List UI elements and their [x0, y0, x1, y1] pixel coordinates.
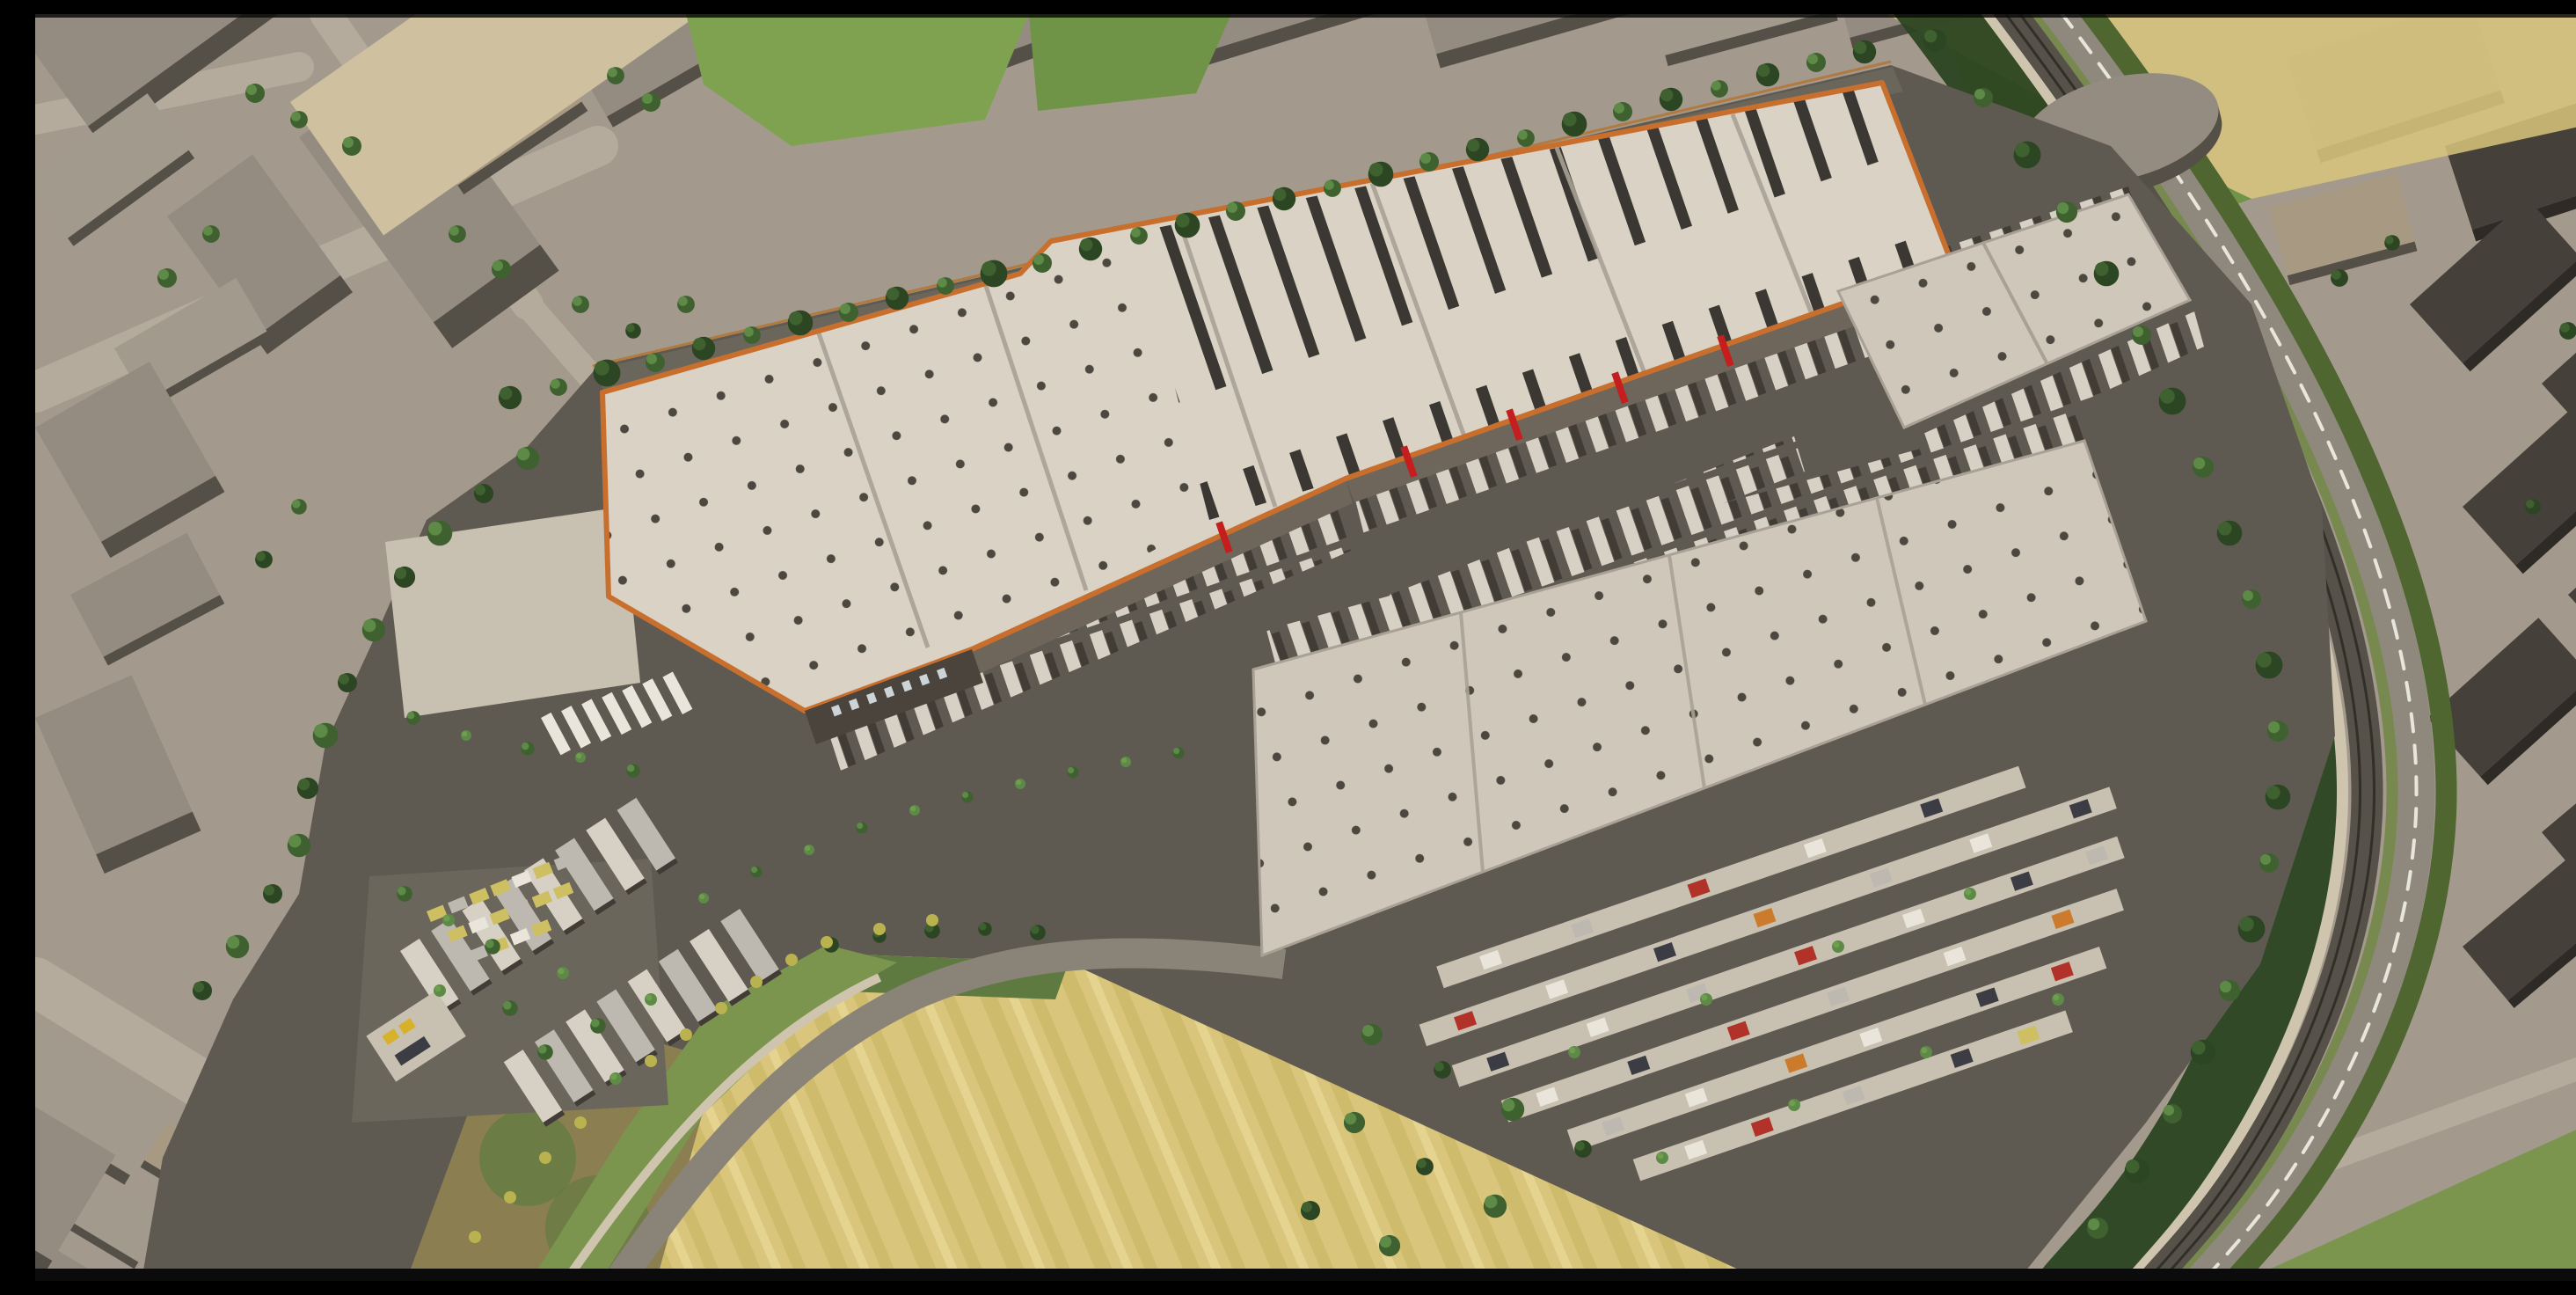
bush — [574, 1116, 587, 1129]
tree — [590, 1018, 606, 1034]
tree — [2259, 853, 2279, 873]
tree — [290, 111, 308, 128]
tree — [342, 136, 361, 156]
tree — [2266, 785, 2291, 810]
tree — [1501, 1098, 1524, 1121]
tree — [1361, 1024, 1383, 1045]
tree — [2052, 993, 2064, 1006]
tree — [575, 752, 586, 763]
tree — [1434, 1061, 1451, 1079]
tree — [626, 764, 639, 777]
tree — [485, 939, 500, 955]
bush — [750, 976, 763, 988]
tree — [1832, 940, 1844, 953]
tree — [397, 886, 412, 902]
tree — [2014, 142, 2041, 169]
tree — [572, 296, 589, 313]
bush — [504, 1191, 516, 1204]
tree — [537, 1044, 553, 1060]
bush — [785, 954, 798, 966]
tree — [492, 260, 511, 279]
tree — [502, 1000, 518, 1016]
tree — [263, 884, 282, 904]
tree — [1416, 1158, 1434, 1175]
tree — [1015, 779, 1025, 789]
tree — [961, 791, 973, 802]
tree — [1756, 63, 1779, 86]
tree — [394, 567, 415, 588]
bush — [645, 1055, 657, 1067]
tree — [291, 499, 307, 515]
tree — [202, 225, 220, 243]
tree — [1484, 1195, 1507, 1218]
tree — [750, 866, 762, 877]
tree — [1613, 102, 1632, 121]
tree — [1964, 888, 1976, 900]
tree — [1172, 747, 1184, 758]
tree — [362, 618, 385, 641]
tree — [1130, 227, 1148, 245]
tree — [1574, 1140, 1592, 1158]
tree — [788, 311, 814, 336]
bush — [539, 1152, 551, 1164]
tree — [743, 326, 761, 344]
tree — [1067, 766, 1078, 778]
aerial-3d-rendering — [35, 14, 2576, 1281]
tree — [1226, 201, 1245, 221]
tree — [434, 984, 446, 997]
tree — [1711, 80, 1728, 98]
tree — [886, 287, 909, 310]
tree — [1656, 1152, 1668, 1164]
tree — [157, 268, 177, 288]
bush — [821, 936, 833, 948]
bush — [680, 1028, 692, 1041]
tree — [193, 981, 212, 1000]
tree — [1033, 253, 1052, 273]
tree — [1562, 112, 1587, 137]
tree — [2159, 388, 2186, 415]
tree — [297, 778, 318, 799]
tree — [1923, 29, 1946, 52]
tree — [1030, 925, 1046, 940]
tree — [692, 337, 715, 360]
tree — [2087, 1218, 2108, 1239]
tree — [557, 967, 569, 979]
tree — [1079, 238, 1102, 260]
bush — [873, 923, 886, 935]
tree — [461, 730, 471, 741]
tree — [2163, 1104, 2182, 1123]
tree — [2056, 201, 2077, 223]
tree — [609, 1072, 622, 1085]
bush — [926, 914, 938, 926]
tree — [1419, 152, 1439, 172]
tree — [338, 673, 357, 692]
tree — [1324, 179, 1341, 197]
tree — [442, 914, 455, 926]
tree — [2219, 980, 2240, 1001]
tree — [1301, 1201, 1320, 1220]
tree — [2191, 1040, 2216, 1065]
tree — [839, 303, 858, 322]
tree — [474, 484, 493, 503]
tree — [1344, 1112, 1365, 1133]
tree — [2256, 652, 2283, 679]
tree — [646, 353, 665, 372]
tree — [1806, 53, 1826, 72]
tree — [1368, 162, 1394, 187]
tree — [2217, 521, 2243, 546]
tree — [1379, 1235, 1400, 1256]
tree — [607, 67, 624, 84]
tree — [1974, 88, 1993, 107]
tree — [1660, 88, 1682, 111]
tree — [856, 822, 867, 833]
tree — [1700, 993, 1712, 1006]
tree — [2525, 499, 2541, 515]
tree — [2125, 1159, 2150, 1184]
tree — [1568, 1046, 1580, 1058]
tree — [937, 277, 954, 295]
tree — [1517, 129, 1535, 147]
tree — [2193, 457, 2214, 478]
tree — [2094, 261, 2120, 287]
tree — [804, 845, 814, 855]
bush — [715, 1002, 727, 1014]
aerial-rendering-canvas — [35, 14, 2576, 1281]
frame-edge-bottom — [35, 1269, 2576, 1281]
tree — [516, 447, 539, 470]
tree — [2238, 916, 2266, 943]
tree — [2559, 322, 2576, 340]
tree — [2132, 326, 2151, 345]
tree — [981, 260, 1008, 288]
tree — [1120, 757, 1131, 767]
tree — [645, 993, 657, 1006]
frame-edge-top — [35, 14, 2576, 18]
tree — [1788, 1099, 1800, 1111]
tree — [1273, 187, 1295, 210]
tree — [226, 935, 249, 958]
tree — [288, 834, 310, 857]
tree — [2331, 269, 2348, 287]
tree — [550, 378, 567, 396]
tree — [313, 723, 339, 749]
tree — [2384, 235, 2400, 251]
tree — [449, 225, 466, 243]
tree — [245, 84, 265, 103]
tree — [521, 742, 534, 755]
tree — [625, 323, 641, 339]
tree — [594, 360, 621, 387]
tree — [2242, 589, 2261, 609]
tree — [1466, 138, 1489, 161]
concrete-pad — [385, 507, 640, 718]
tree — [2267, 721, 2288, 742]
tree — [677, 296, 695, 313]
tree — [499, 386, 522, 409]
bush — [469, 1231, 481, 1243]
tree — [1175, 213, 1200, 238]
tree — [255, 551, 273, 568]
tree — [698, 893, 709, 904]
tree — [406, 711, 420, 724]
tree — [909, 805, 920, 816]
tree — [1853, 40, 1876, 63]
tree — [1920, 1046, 1932, 1058]
tree — [978, 922, 991, 935]
tree — [427, 521, 453, 546]
tree — [641, 92, 660, 112]
